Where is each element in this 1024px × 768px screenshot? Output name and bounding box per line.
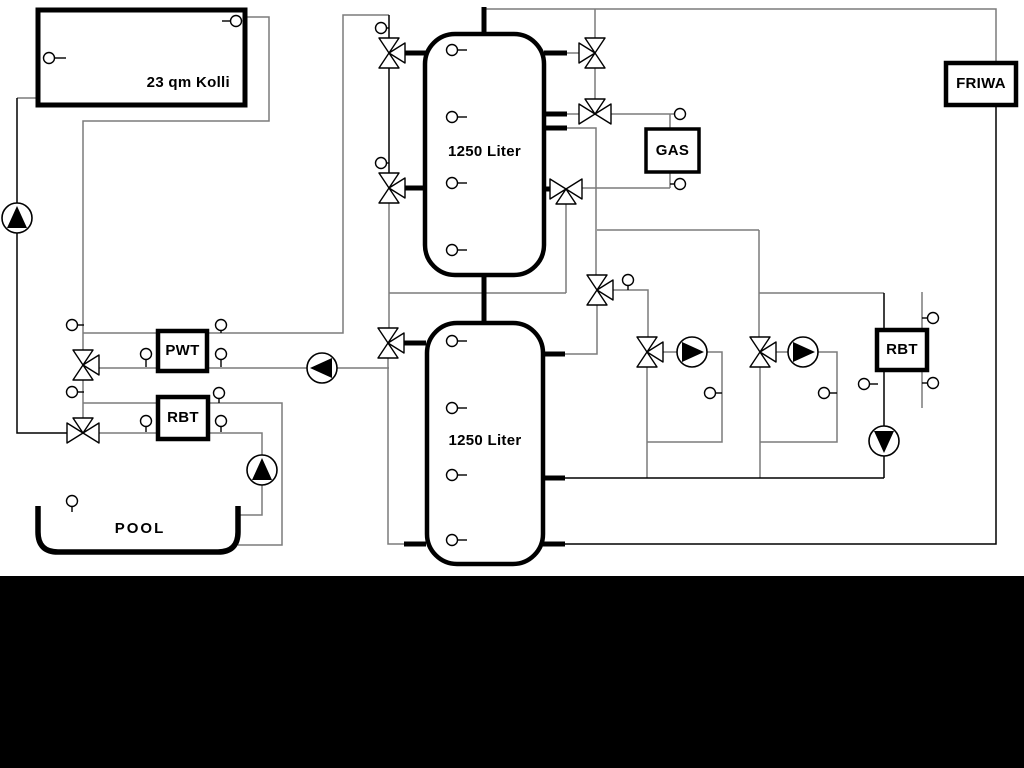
- three-way-valve-circuit1: [637, 337, 663, 367]
- temp-sensor-circuit1: [705, 388, 723, 399]
- three-way-valve-tank1-left-bottom: [379, 173, 405, 203]
- three-way-valve-circuit2: [750, 337, 776, 367]
- three-way-valve-tank1-right-top: [579, 38, 605, 68]
- circuit2-pump: [788, 337, 818, 367]
- temp-sensor-bypass-top: [922, 313, 939, 324]
- collector-label: 23 qm Kolli: [36, 75, 230, 91]
- temp-sensor-gas-bottom: [670, 179, 686, 190]
- temp-sensor-rbtr: [859, 379, 879, 390]
- temp-sensor-solar-2: [67, 387, 85, 398]
- pipe-pool-pump-down: [238, 485, 262, 515]
- solar-pump: [2, 203, 32, 233]
- rbt-right-pump: [869, 426, 899, 456]
- three-way-valve-gas-return: [550, 179, 582, 204]
- temp-sensor-rbtl-br: [216, 416, 227, 433]
- rbt-left-label: RBT: [156, 410, 210, 426]
- pipe-gas-supply: [611, 114, 674, 128]
- temp-sensor-circuit2: [819, 388, 838, 399]
- circuit1-pump: [677, 337, 707, 367]
- pwt-label: PWT: [156, 343, 209, 359]
- temp-sensor-rbtl-bl: [141, 416, 152, 433]
- three-way-valve-solar-rbt: [67, 418, 99, 443]
- friwa-label: FRIWA: [944, 76, 1018, 92]
- temp-sensor-valve-column-1: [376, 23, 390, 34]
- pipe-gas-return: [582, 173, 670, 188]
- pipe-tank2-left-column: [388, 358, 404, 544]
- three-way-valve-tank2-left: [378, 328, 404, 358]
- bottom-black-bar: [0, 576, 1024, 768]
- three-way-valve-gas-supply: [579, 99, 611, 124]
- temp-sensor-gas-top: [675, 109, 686, 120]
- three-way-valve-tank1-left-top: [379, 38, 405, 68]
- temp-sensor-pwt-br: [216, 349, 227, 368]
- temp-sensor-valve-column-2: [376, 158, 390, 169]
- pool-label: POOL: [40, 521, 240, 537]
- pwt-charge-pump: [307, 353, 337, 383]
- temp-sensor-solar-1: [67, 320, 85, 331]
- temp-sensor-pool: [67, 496, 78, 513]
- temp-sensor-pwt-top: [216, 320, 227, 334]
- pipe-vf-down-to-tank2: [565, 305, 597, 354]
- hydraulic-schematic: 23 qm Kolli 1250 Liter 1250 Liter GAS FR…: [0, 0, 1024, 768]
- temp-sensor-bypass-bottom: [922, 378, 939, 389]
- temp-sensor-distribution: [623, 275, 634, 291]
- pipe-vf-right: [613, 290, 648, 337]
- buffer-tank2-label: 1250 Liter: [425, 433, 545, 449]
- buffer-tank1-label: 1250 Liter: [423, 144, 546, 160]
- three-way-valve-solar-pwt: [73, 350, 99, 380]
- gas-boiler-label: GAS: [645, 143, 700, 159]
- temp-sensor-pwt-bl: [141, 349, 152, 368]
- pool-pump: [247, 455, 277, 485]
- rbt-right-label: RBT: [875, 342, 929, 358]
- three-way-valve-distribution: [587, 275, 613, 305]
- pipe-rbtl-bottom-right: [210, 433, 262, 455]
- temp-sensor-rbtl-top: [214, 388, 225, 404]
- pipe-solar-return: [17, 98, 67, 433]
- component-bodies: [38, 10, 1016, 564]
